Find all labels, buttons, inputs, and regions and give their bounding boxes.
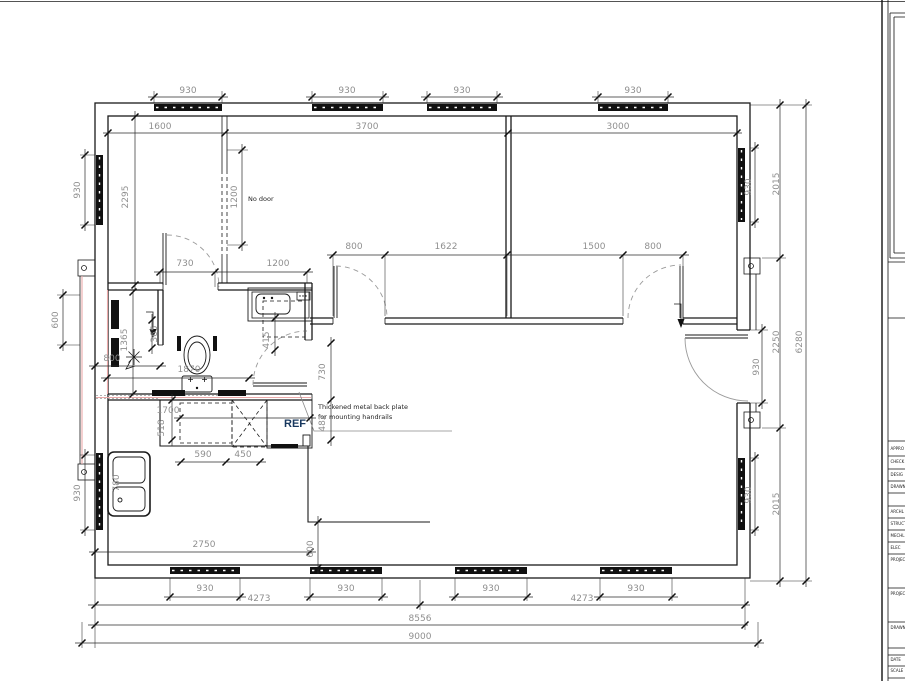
dim-1500: 1500 [583,242,606,252]
toilet [177,336,217,392]
dim-kitchen-600: 600 [306,540,316,557]
titleblock-row-scale: SCALE [891,668,904,673]
titleblock-row-project-2: PROJECT [891,591,905,596]
dim-top-seg-3000: 3000 [607,122,630,132]
dim-1870: 1870 [178,365,201,375]
dim-518: 518 [157,419,167,436]
dim-top-window-3: 930 [453,86,470,96]
dim-bottom-window-3: 930 [482,584,499,594]
dim-482: 482 [318,414,328,431]
dim-365: 365 [150,325,160,342]
dim-right-2015-bottom: 2015 [772,493,782,516]
note-line-2: for mounting handrails [318,413,393,421]
dim-bottom-window-4: 930 [627,584,644,594]
dim-bath-1200: 1200 [267,259,290,269]
dim-1365: 1365 [120,329,130,352]
dim-415: 415 [262,331,272,348]
dim-bottom-window-2: 930 [337,584,354,594]
counter-dashed [180,403,232,443]
titleblock-row-date: DATE [891,657,902,662]
dim-9000: 9000 [409,632,432,642]
dim-right-2015-top: 2015 [772,173,782,196]
windows [96,104,745,574]
bathroom-fixtures [111,288,312,396]
titleblock-row-appro: APPRO [891,446,905,451]
titleblock-row-struct: STRUCT [891,521,905,526]
dim-right-window-bottom: 930 [744,486,754,503]
dim-2295: 2295 [121,186,131,209]
dim-door-800-right: 800 [644,242,661,252]
dim-1200-opening: 1200 [230,185,240,208]
dim-left-600: 600 [51,311,61,328]
dim-top-window-2: 930 [338,86,355,96]
cad-viewport: REF Thickened metal back plate for mount… [0,0,905,681]
vanity-sink [248,288,312,337]
grab-bar-2 [218,390,246,396]
dim-right-2250: 2250 [772,330,782,353]
floor-plan-drawing: REF Thickened metal back plate for mount… [0,0,905,681]
outer-walls [95,103,752,578]
washer-space [232,400,267,447]
corridor-left-door [334,266,387,318]
titleblock-row-check: CHECK [891,459,905,464]
dim-2750: 2750 [193,540,216,550]
grab-rail-left-1 [111,300,119,329]
dim-bottom-window-1: 930 [196,584,213,594]
entry-arrows [146,304,685,338]
dim-right-6280: 6280 [795,330,805,353]
titleblock-row-elec: ELEC [891,545,901,550]
titleblock-row-drawn-2: DRAWN [891,625,905,630]
dim-1700: 1700 [157,406,180,416]
titleblock-row-mechl: MECHL [891,533,905,538]
dim-right-window-top: 930 [744,178,754,195]
dim-1622: 1622 [435,242,458,252]
titleblock-row-desig: DESIG [891,472,903,477]
ref-label: REF [284,418,306,430]
titleblock: APPRO CHECK DESIG DRAWN ARCHL STRUCT MEC… [882,0,905,681]
interior-walls [108,116,737,522]
titleblock-row-project-1: PROJECT [891,557,905,562]
dim-top-seg-3700: 3700 [356,122,379,132]
dim-4273-right: 4273 [571,594,594,604]
dimension-ticks [60,94,810,647]
no-door-label: No door [248,195,274,203]
dim-shower-800: 800 [103,354,120,364]
grab-bar-1 [152,390,185,396]
dim-590: 590 [194,450,211,460]
dim-top-window-4: 930 [624,86,641,96]
dim-8556: 8556 [409,614,432,624]
titleblock-row-drawn: DRAWN [891,484,905,489]
dim-bath-door-730: 730 [318,363,328,380]
dim-4273-left: 4273 [248,594,271,604]
dim-door-800-left: 800 [345,242,362,252]
dim-right-door-930: 930 [752,358,762,375]
titleblock-row-archl: ARCHL [891,509,905,514]
dim-left-window-top: 930 [73,181,83,198]
dim-bath-730: 730 [176,259,193,269]
corridor-right-door [628,265,683,318]
dim-top-window-1: 930 [179,86,196,96]
dim-450: 450 [234,450,251,460]
dimension-texts: 930 930 930 930 1600 3700 3000 800 1622 … [51,86,805,642]
dim-top-seg-1600: 1600 [149,122,172,132]
dim-left-window-bottom: 930 [73,484,83,501]
dim-sink-780: 780 [112,474,122,491]
